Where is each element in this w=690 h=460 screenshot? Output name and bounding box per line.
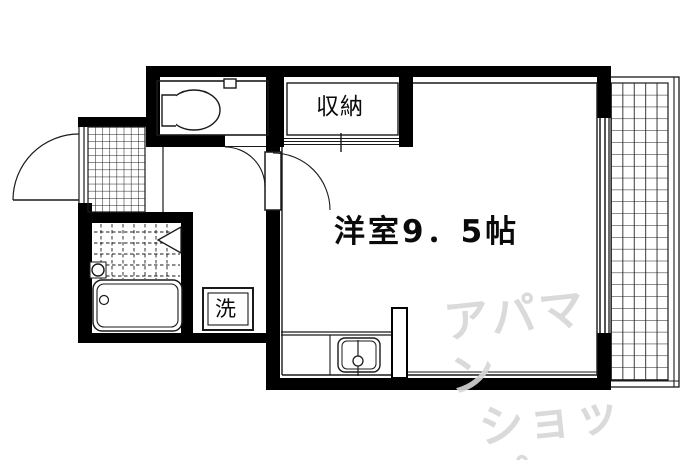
watermark-line1: アパマン (441, 277, 641, 404)
genkan-tile-grid (88, 127, 145, 212)
wall-bath-right (181, 212, 193, 343)
bathtub-icon (93, 280, 182, 331)
pipe-column (392, 308, 407, 378)
wall-right-top (597, 66, 611, 118)
wall-top (148, 66, 610, 77)
kitchen (281, 308, 407, 378)
room-door-leaf (265, 152, 281, 210)
main-room-label: 洋室9．5帖 (334, 217, 519, 248)
wall-lower-bottom (78, 333, 280, 343)
bath-drain (90, 262, 106, 278)
floor-plan: 洋室9．5帖 収納 洗 アパマン ショップ (0, 0, 690, 460)
bath-door-symbol (158, 227, 181, 253)
toilet-room (157, 79, 268, 187)
wall-closet-right (399, 66, 413, 147)
wall-bath-top (78, 212, 193, 223)
closet-label: 収納 (316, 96, 364, 119)
kitchen-sink-icon (338, 338, 380, 376)
entry (13, 127, 163, 212)
toilet-icon (162, 90, 220, 130)
bath-floor-grid (94, 224, 180, 279)
kitchen-counter-edge (281, 332, 392, 335)
wall-toilet-bottom (146, 135, 225, 147)
watermark: アパマン ショップ (441, 277, 653, 460)
bathroom (90, 224, 182, 331)
toilet-window (224, 79, 236, 88)
entry-door-arc (13, 134, 79, 200)
laundry-label: 洗 (215, 299, 236, 320)
entry-door-frame (79, 127, 84, 203)
wall-entry-top (78, 117, 146, 127)
toilet-door-arc (225, 147, 265, 187)
